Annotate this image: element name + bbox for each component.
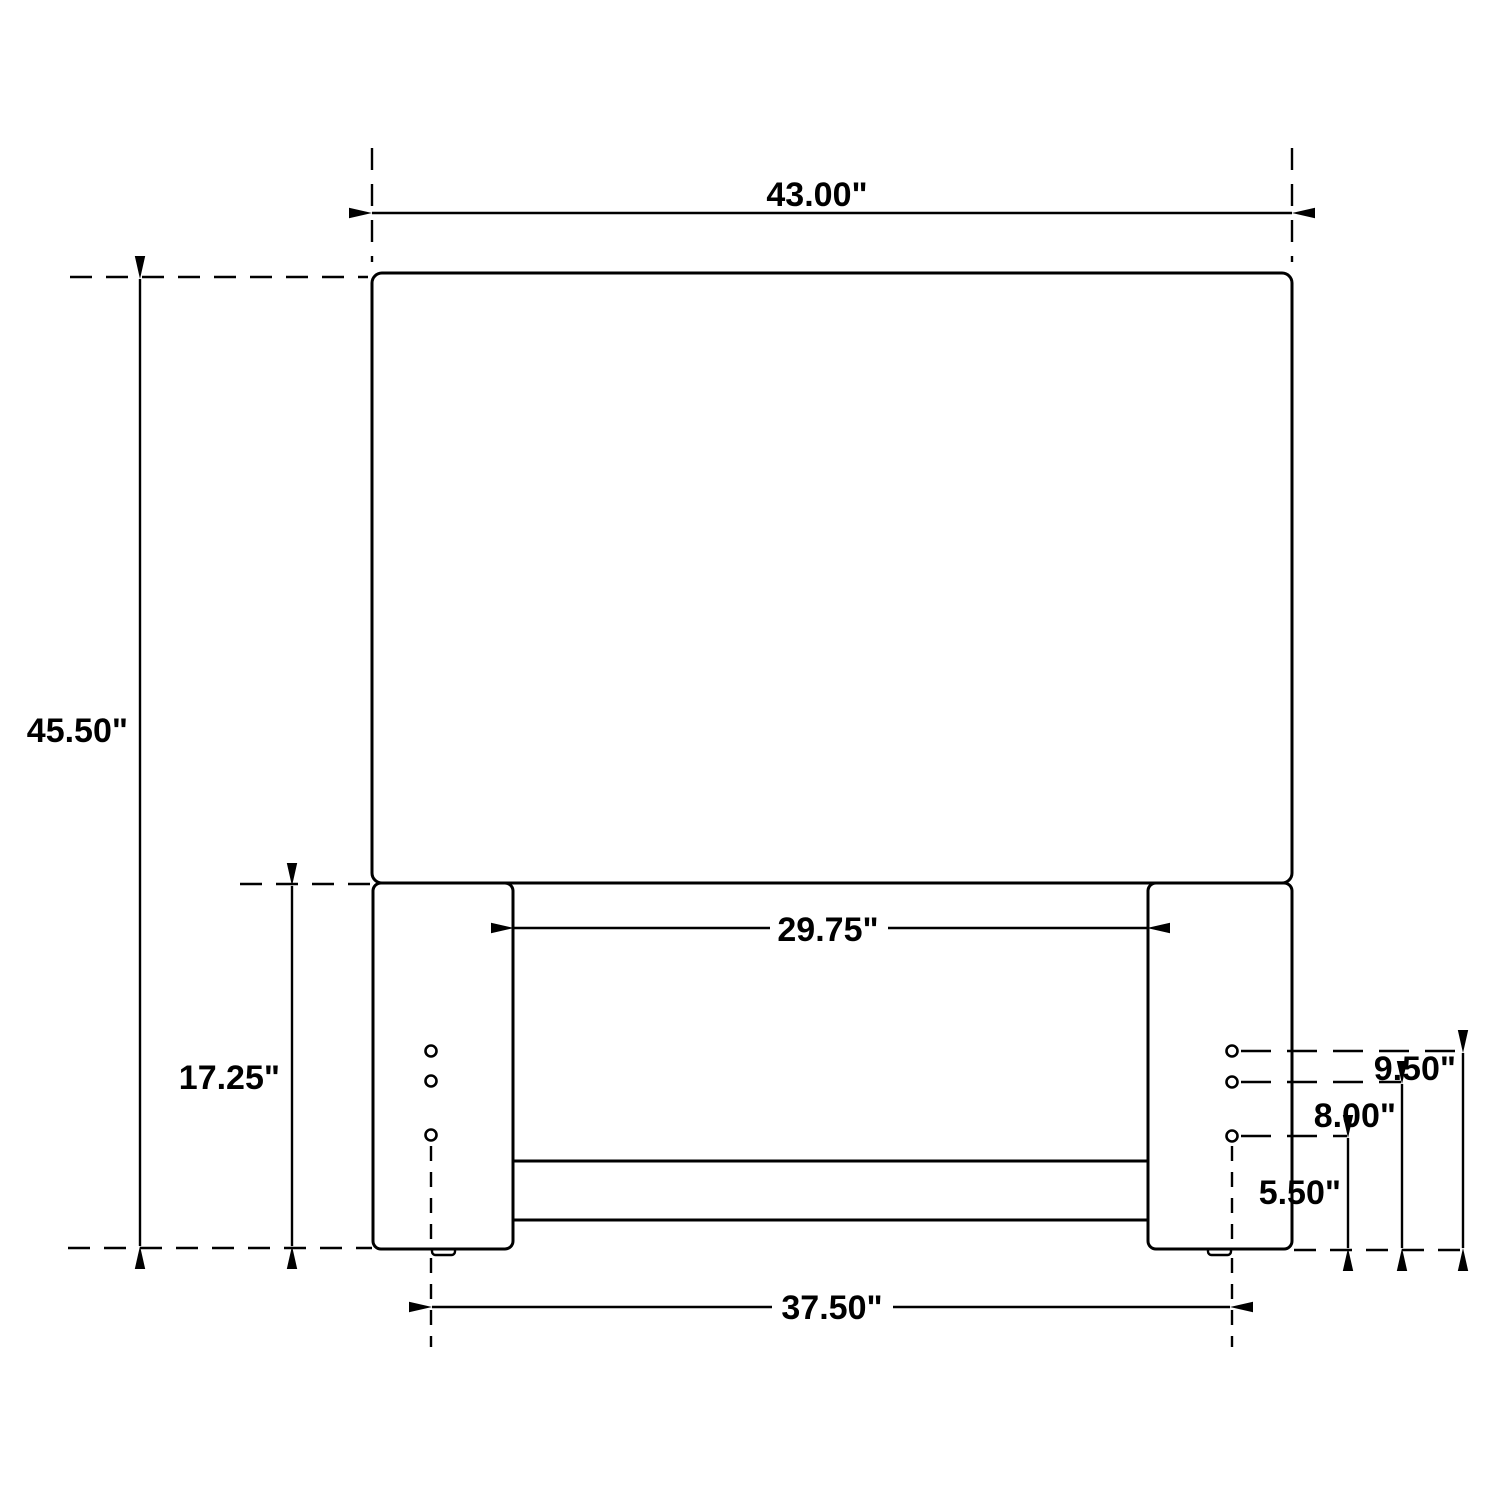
left-leg-bolt-hole-middle <box>426 1076 437 1087</box>
dimension-drawing-canvas: 43.00" 45.50" 17.25" 29.75" 37.50" 9.50" <box>0 0 1500 1500</box>
dim-overall-height-label: 45.50" <box>27 712 128 750</box>
dim-leg-height-label: 17.25" <box>179 1059 280 1097</box>
dim-leg-height: 17.25" <box>179 884 370 1246</box>
dim-overall-width-label: 43.00" <box>766 176 867 214</box>
dim-hole-bottom-label: 5.50" <box>1259 1174 1341 1212</box>
dim-between-legs-label: 29.75" <box>777 911 878 949</box>
right-leg-bolt-hole-top <box>1227 1046 1238 1057</box>
right-leg-bolt-hole-bottom <box>1227 1131 1238 1142</box>
dim-overall-height: 45.50" <box>27 277 372 1248</box>
dim-leg-centerline-span-label: 37.50" <box>781 1289 882 1327</box>
left-leg <box>373 883 513 1249</box>
headboard-panel <box>372 273 1292 883</box>
left-leg-bolt-hole-top <box>426 1046 437 1057</box>
dim-overall-width: 43.00" <box>372 148 1292 262</box>
right-leg-bolt-hole-middle <box>1227 1077 1238 1088</box>
dim-between-legs: 29.75" <box>514 911 1147 949</box>
dim-leg-centerline-span: 37.50" <box>431 1146 1232 1347</box>
left-leg-bolt-hole-bottom <box>426 1130 437 1141</box>
headboard-dimension-diagram: 43.00" 45.50" 17.25" 29.75" 37.50" 9.50" <box>0 0 1500 1500</box>
headboard-outline <box>372 273 1292 1255</box>
dim-hole-middle-label: 8.00" <box>1314 1097 1396 1135</box>
